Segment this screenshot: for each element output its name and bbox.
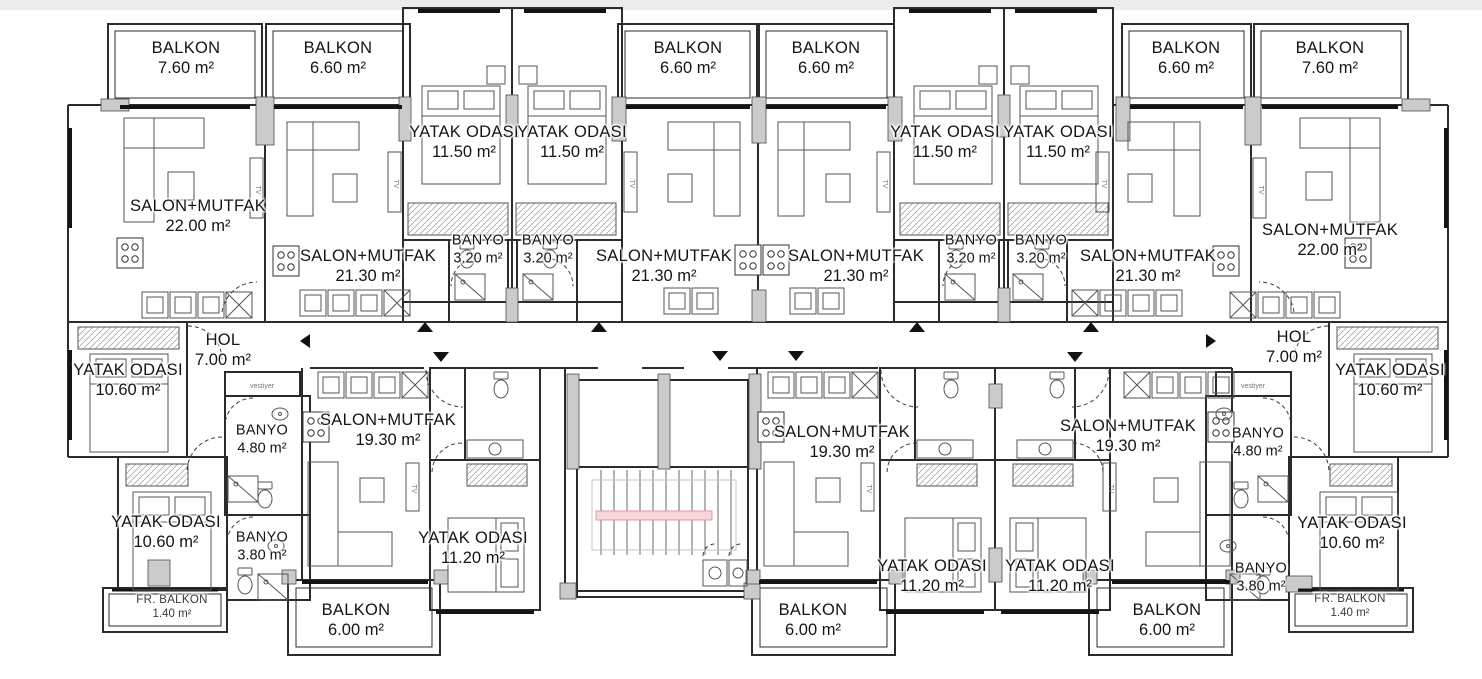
up-arrow-icon <box>417 322 433 332</box>
room-label-yatak-odasi-8: YATAK ODASI11.20 m² <box>877 556 987 596</box>
room-label-fr-balkon-2: FR. BALKON1.40 m² <box>1314 592 1385 620</box>
room-label-balkon-7: BALKON6.00 m² <box>322 600 391 640</box>
room-label-balkon-9: BALKON6.00 m² <box>1133 600 1202 640</box>
room-label-yatak-odasi-2: YATAK ODASI11.50 m² <box>517 122 627 162</box>
room-label-fr-balkon-1: FR. BALKON1.40 m² <box>136 593 207 621</box>
tv-text: TV <box>865 485 872 494</box>
room-label-balkon-2: BALKON6.60 m² <box>304 38 373 78</box>
room-label-salon-mutfak-2: SALON+MUTFAK21.30 m² <box>300 246 436 286</box>
room-label-yatak-odasi-9: YATAK ODASI11.20 m² <box>1005 556 1115 596</box>
room-label-banyo-4: BANYO3.20 m² <box>1015 232 1067 267</box>
tv-text: TV <box>1257 186 1264 195</box>
sofa-icons <box>124 118 1380 566</box>
room-label-banyo-1: BANYO3.20 m² <box>452 232 504 267</box>
room-label-yatak-odasi-4: YATAK ODASI11.50 m² <box>1003 122 1113 162</box>
tv-text: TV <box>881 180 888 189</box>
tv-text: TV <box>392 180 399 189</box>
room-label-salon-mutfak-8: SALON+MUTFAK19.30 m² <box>774 422 910 462</box>
room-label-salon-mutfak-3: SALON+MUTFAK21.30 m² <box>596 246 732 286</box>
room-label-hol-2: HOL7.00 m² <box>1266 327 1322 367</box>
room-label-yatak-odasi-7: YATAK ODASI11.20 m² <box>418 528 528 568</box>
structural-columns <box>101 95 1430 599</box>
room-label-hol-1: HOL7.00 m² <box>195 330 251 370</box>
room-label-banyo-8: BANYO3.80 m² <box>1235 560 1287 595</box>
room-label-salon-mutfak-4: SALON+MUTFAK21.30 m² <box>788 246 924 286</box>
room-label-salon-mutfak-9: SALON+MUTFAK19.30 m² <box>1060 416 1196 456</box>
room-label-banyo-2: BANYO3.20 m² <box>522 232 574 267</box>
tv-text: TV <box>254 186 261 195</box>
room-label-balkon-1: BALKON7.60 m² <box>152 38 221 78</box>
up-arrow-icon <box>591 322 607 332</box>
room-label-banyo-5: BANYO4.80 m² <box>236 422 288 457</box>
room-label-banyo-6: BANYO3.80 m² <box>236 529 288 564</box>
room-label-yatak-odasi-6: YATAK ODASI10.60 m² <box>111 512 221 552</box>
up-arrow-icon <box>909 322 925 332</box>
room-label-banyo-7: BANYO4.80 m² <box>1232 425 1284 460</box>
room-label-balkon-4: BALKON6.60 m² <box>792 38 861 78</box>
tv-text: TV <box>410 485 417 494</box>
room-label-salon-mutfak-6: SALON+MUTFAK22.00 m² <box>1262 220 1398 260</box>
up-arrow-icon <box>1083 322 1099 332</box>
room-label-yatak-odasi-10: YATAK ODASI10.60 m² <box>1335 360 1445 400</box>
kitchen-counter-icons <box>142 288 1340 398</box>
bed-icons <box>90 66 1432 592</box>
room-label-salon-mutfak-5: SALON+MUTFAK21.30 m² <box>1080 246 1216 286</box>
room-label-yatak-odasi-11: YATAK ODASI10.60 m² <box>1297 513 1407 553</box>
stair-handrail <box>596 511 712 520</box>
room-label-yatak-odasi-1: YATAK ODASI11.50 m² <box>409 122 519 162</box>
tv-text: TV <box>1107 485 1114 494</box>
direction-arrow-icons <box>300 322 1216 362</box>
room-label-salon-mutfak-1: SALON+MUTFAK22.00 m² <box>130 196 266 236</box>
staircase <box>592 470 747 586</box>
vestiyer-text: vestiyer <box>1241 383 1266 390</box>
down-arrow-icon <box>1067 352 1083 362</box>
tv-text: TV <box>1100 180 1107 189</box>
room-label-yatak-odasi-5: YATAK ODASI10.60 m² <box>73 360 183 400</box>
vestiyer-text: vestiyer <box>250 383 275 390</box>
room-label-balkon-3: BALKON6.60 m² <box>654 38 723 78</box>
room-label-balkon-6: BALKON7.60 m² <box>1296 38 1365 78</box>
room-label-banyo-3: BANYO3.20 m² <box>945 232 997 267</box>
left-arrow-icon <box>300 334 310 348</box>
down-arrow-icon <box>712 351 728 361</box>
tv-text: TV <box>628 180 635 189</box>
room-label-balkon-5: BALKON6.60 m² <box>1152 38 1221 78</box>
room-label-balkon-8: BALKON6.00 m² <box>779 600 848 640</box>
room-label-salon-mutfak-7: SALON+MUTFAK19.30 m² <box>320 410 456 450</box>
floor-plan: TV TV TV TV TV TV TV TV TV vestiyer vest… <box>0 0 1482 679</box>
right-arrow-icon <box>1206 334 1216 348</box>
down-arrow-icon <box>788 351 804 361</box>
down-arrow-icon <box>433 352 449 362</box>
room-label-yatak-odasi-3: YATAK ODASI11.50 m² <box>890 122 1000 162</box>
